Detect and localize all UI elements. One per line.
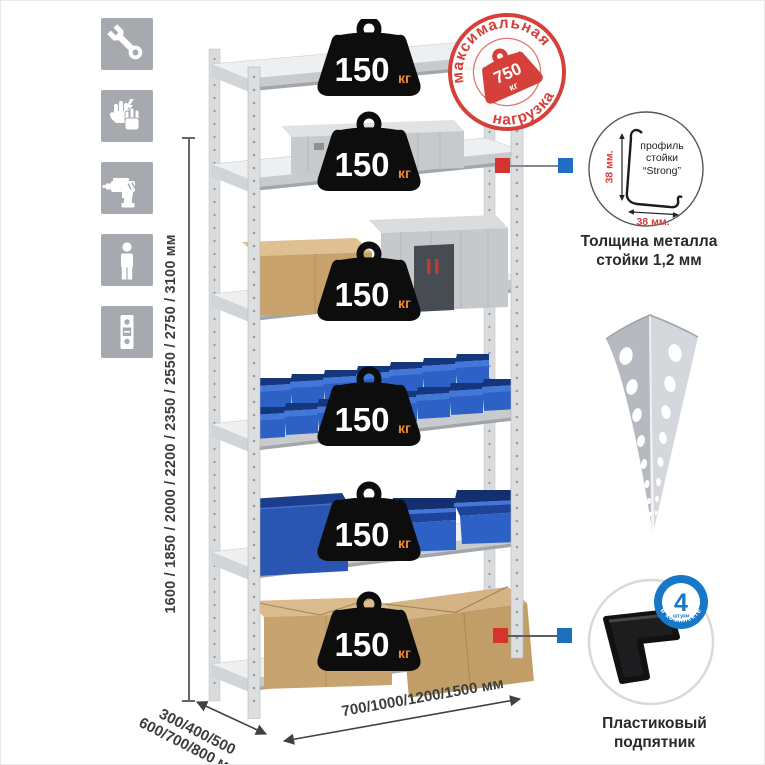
post-profile-detail: 38 мм. 38 мм. профиль стойки “Strong” <box>586 109 706 229</box>
height-dimension-label: 1600 / 1850 / 2000 / 2200 / 2350 / 2550 … <box>163 139 185 709</box>
max-load-stamp: максимальная нагрузка 750 кг <box>439 4 575 140</box>
svg-text:кг: кг <box>398 70 411 86</box>
profile-label: профиль стойки “Strong” <box>640 140 684 177</box>
svg-text:150: 150 <box>334 626 389 663</box>
svg-text:“Strong”: “Strong” <box>643 165 681 177</box>
load-badges: 150 кг 150 кг 150 кг 150 кг 150 кг <box>317 20 420 671</box>
included-count-badge: 4 штуки в комплекте <box>654 575 708 629</box>
callout-marker-red-profile <box>495 158 510 173</box>
svg-text:150: 150 <box>334 516 389 553</box>
callout-marker-blue-profile <box>558 158 573 173</box>
profile-dim-vertical: 38 мм. <box>604 150 616 183</box>
corner-post-photo <box>596 301 711 536</box>
profile-dim-horizontal: 38 мм. <box>636 216 669 228</box>
callout-marker-red-foot <box>493 628 508 643</box>
weight-badge: 150 кг <box>317 20 420 96</box>
svg-text:стойки: стойки <box>646 152 678 164</box>
drill-icon <box>101 162 153 214</box>
gloves-icon <box>101 90 153 142</box>
svg-text:150: 150 <box>334 51 389 88</box>
height-dimension-line <box>188 138 190 701</box>
person-icon <box>101 234 153 286</box>
svg-text:150: 150 <box>334 401 389 438</box>
svg-text:профиль: профиль <box>640 140 684 152</box>
callout-line-foot <box>508 635 557 637</box>
profile-caption: Толщина металла стойки 1,2 мм <box>569 232 729 271</box>
svg-text:кг: кг <box>398 165 411 181</box>
svg-text:кг: кг <box>398 645 411 661</box>
plastic-foot-detail: 4 штуки в комплекте <box>584 571 724 716</box>
level-icon <box>101 306 153 358</box>
svg-text:кг: кг <box>398 295 411 311</box>
svg-text:150: 150 <box>334 276 389 313</box>
svg-text:кг: кг <box>398 420 411 436</box>
wrench-icon <box>101 18 153 70</box>
callout-line-profile <box>510 165 558 167</box>
svg-text:150: 150 <box>334 146 389 183</box>
product-infographic: 1600 / 1850 / 2000 / 2200 / 2350 / 2550 … <box>0 0 765 765</box>
svg-text:кг: кг <box>398 535 411 551</box>
foot-caption: Пластиковый подпятник <box>577 714 732 753</box>
callout-marker-blue-foot <box>557 628 572 643</box>
